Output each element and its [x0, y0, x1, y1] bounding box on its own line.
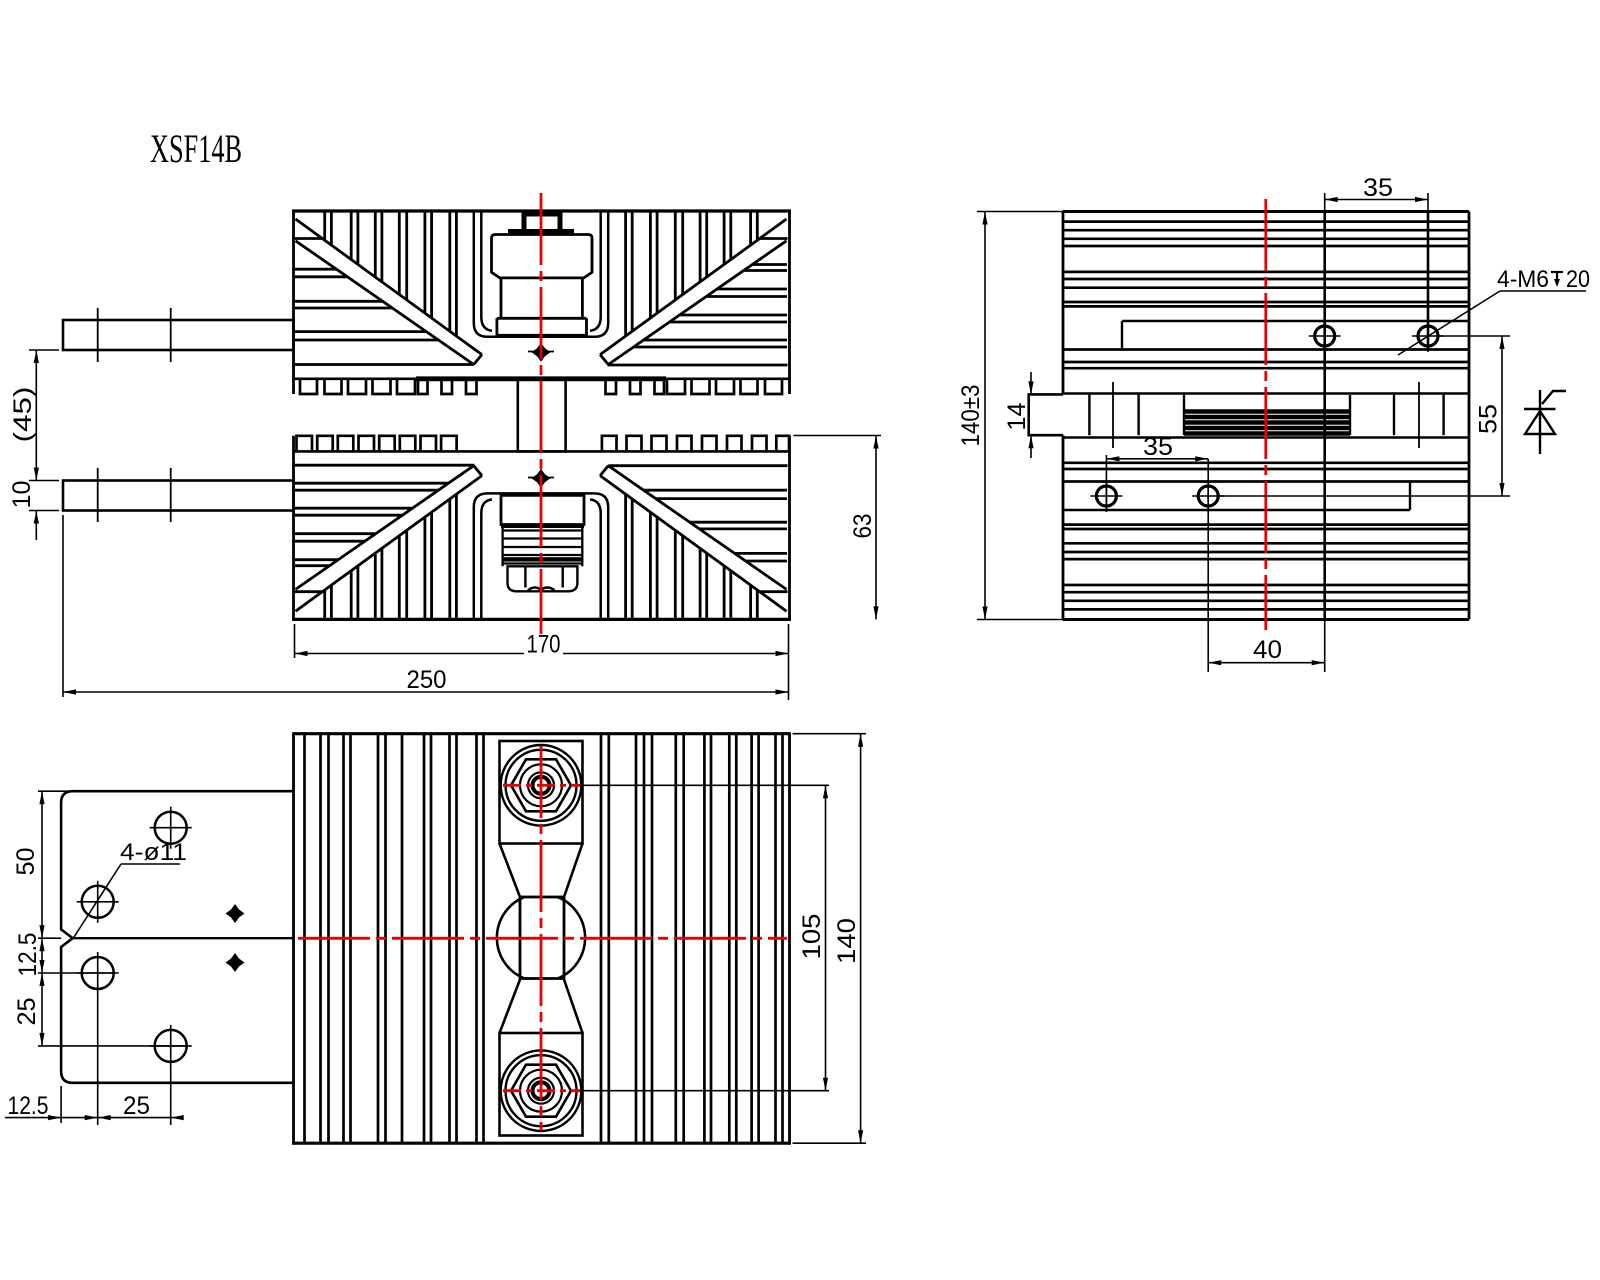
svg-text:25: 25 — [13, 998, 41, 1026]
svg-text:140: 140 — [833, 918, 861, 964]
svg-text:170: 170 — [527, 631, 561, 659]
svg-text:(45): (45) — [9, 387, 37, 443]
svg-text:4-M6: 4-M6 — [1497, 266, 1549, 293]
svg-text:140±3: 140±3 — [957, 385, 985, 447]
svg-text:105: 105 — [798, 914, 826, 960]
svg-text:25: 25 — [123, 1092, 150, 1120]
svg-text:50: 50 — [12, 848, 40, 876]
svg-text:12.5: 12.5 — [8, 1092, 49, 1120]
svg-text:250: 250 — [407, 666, 447, 694]
svg-text:35: 35 — [1363, 174, 1393, 202]
svg-text:12.5: 12.5 — [14, 933, 42, 977]
svg-text:63: 63 — [849, 514, 877, 539]
svg-text:10: 10 — [8, 481, 36, 509]
svg-text:4-ø11: 4-ø11 — [120, 839, 187, 866]
svg-text:40: 40 — [1253, 636, 1282, 664]
svg-text:14: 14 — [1003, 402, 1031, 430]
svg-text:35: 35 — [1143, 433, 1173, 461]
svg-text:20: 20 — [1566, 266, 1590, 293]
svg-text:XSF14B: XSF14B — [150, 126, 242, 171]
svg-text:55: 55 — [1475, 404, 1503, 434]
